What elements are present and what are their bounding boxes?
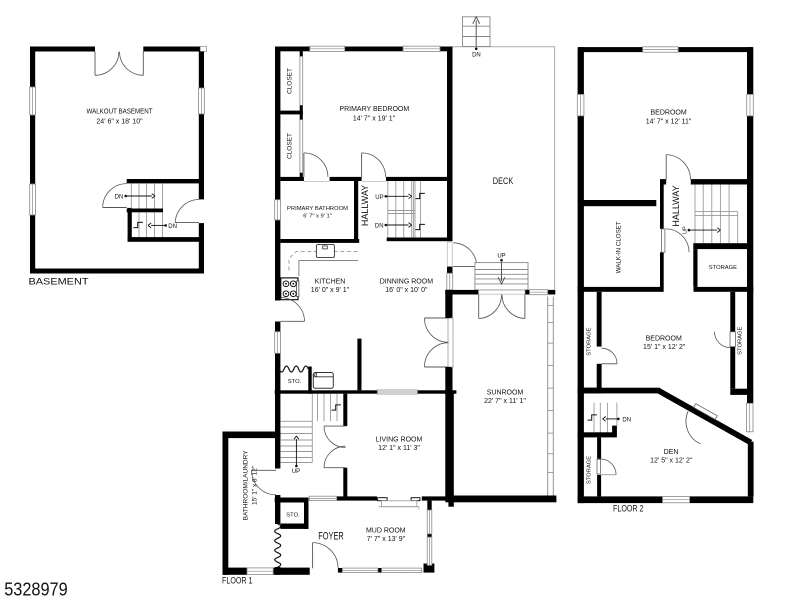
svg-text:6' 7" x 9' 1": 6' 7" x 9' 1" xyxy=(303,214,332,220)
svg-text:DECK: DECK xyxy=(493,176,514,186)
svg-text:FOYER: FOYER xyxy=(318,531,344,543)
svg-text:BEDROOM: BEDROOM xyxy=(651,110,687,117)
svg-text:7' 7" x 13' 9": 7' 7" x 13' 9" xyxy=(367,536,406,543)
svg-text:15' 1" x 12' 2": 15' 1" x 12' 2" xyxy=(643,344,686,351)
svg-text:SUNROOM: SUNROOM xyxy=(487,390,524,397)
svg-text:WALK-IN CLOSET: WALK-IN CLOSET xyxy=(616,221,623,273)
svg-text:UP: UP xyxy=(292,469,300,475)
svg-text:STORAGE: STORAGE xyxy=(587,327,593,355)
svg-text:5328979: 5328979 xyxy=(4,580,67,600)
svg-text:STO.: STO. xyxy=(286,513,300,519)
svg-text:PRIMARY BATHROOM: PRIMARY BATHROOM xyxy=(287,206,348,212)
svg-text:LIVING ROOM: LIVING ROOM xyxy=(376,437,423,444)
svg-text:15' 1" x 8' 12": 15' 1" x 8' 12" xyxy=(252,465,259,505)
svg-text:DN: DN xyxy=(168,224,177,230)
svg-text:HALLWAY: HALLWAY xyxy=(360,185,370,226)
svg-text:BEDROOM: BEDROOM xyxy=(646,336,682,343)
svg-text:KITCHEN: KITCHEN xyxy=(315,279,346,286)
svg-text:STORAGE: STORAGE xyxy=(587,456,593,484)
svg-text:PRIMARY BEDROOM: PRIMARY BEDROOM xyxy=(339,106,409,113)
svg-text:24' 6" x 18' 10": 24' 6" x 18' 10" xyxy=(96,119,143,126)
svg-text:BATHROOM/LAUNDRY: BATHROOM/LAUNDRY xyxy=(243,450,250,520)
svg-text:UP: UP xyxy=(682,226,688,234)
svg-text:DN: DN xyxy=(622,418,631,424)
svg-text:UP: UP xyxy=(375,195,383,201)
svg-text:CLOSET: CLOSET xyxy=(287,133,294,159)
svg-text:DN: DN xyxy=(115,195,124,201)
svg-text:UP: UP xyxy=(497,254,505,260)
svg-text:WALKOUT BASEMENT: WALKOUT BASEMENT xyxy=(87,109,154,116)
svg-text:BASEMENT: BASEMENT xyxy=(29,275,89,286)
svg-text:DINNING ROOM: DINNING ROOM xyxy=(380,279,433,286)
svg-text:14' 7" x 12' 11": 14' 7" x 12' 11" xyxy=(646,119,692,126)
svg-text:DN: DN xyxy=(472,53,481,59)
svg-text:STORAGE: STORAGE xyxy=(709,265,737,271)
svg-text:STO.: STO. xyxy=(288,379,302,385)
svg-text:DEN: DEN xyxy=(664,449,679,456)
svg-text:HALLWAY: HALLWAY xyxy=(671,185,681,226)
svg-text:14' 7" x 19' 1": 14' 7" x 19' 1" xyxy=(353,116,396,123)
svg-text:FLOOR 2: FLOOR 2 xyxy=(613,503,644,514)
svg-text:MUD ROOM: MUD ROOM xyxy=(366,528,406,535)
svg-text:STORAGE: STORAGE xyxy=(738,326,744,354)
svg-text:CLOSET: CLOSET xyxy=(287,68,294,94)
svg-text:FLOOR 1: FLOOR 1 xyxy=(222,575,253,586)
svg-text:22' 7" x 11' 1": 22' 7" x 11' 1" xyxy=(484,398,526,405)
svg-text:16' 0" x 10' 0": 16' 0" x 10' 0" xyxy=(385,287,428,294)
svg-text:12' 1" x 11' 3": 12' 1" x 11' 3" xyxy=(378,445,420,452)
svg-text:16' 0" x 9' 1": 16' 0" x 9' 1" xyxy=(311,287,350,294)
svg-text:12' 5" x 12' 2": 12' 5" x 12' 2" xyxy=(650,458,693,465)
svg-text:DN: DN xyxy=(375,224,384,230)
